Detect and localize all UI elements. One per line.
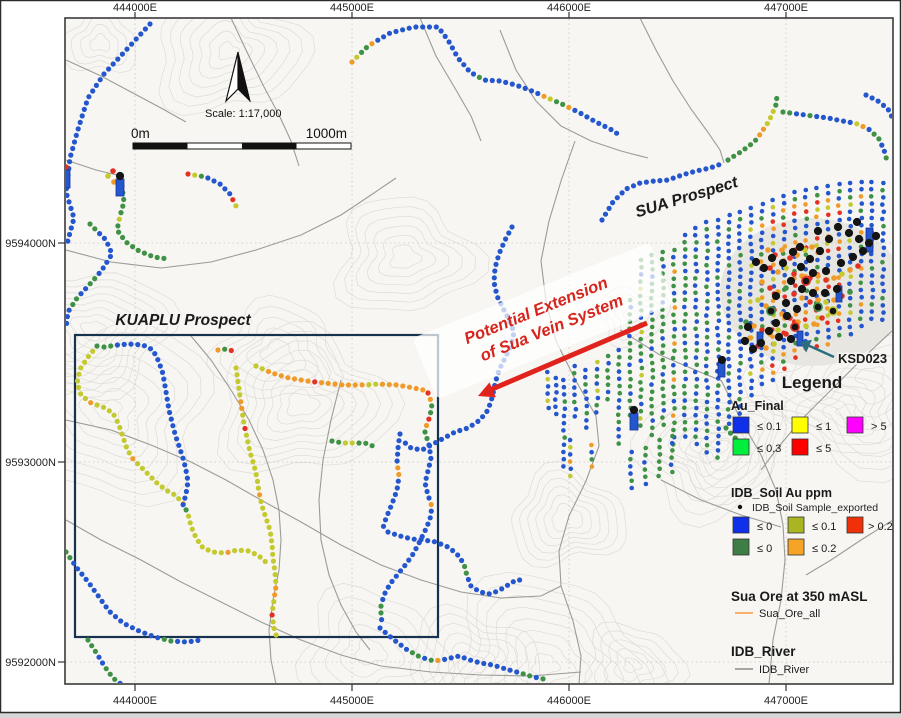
ksd023-label: KSD023 [838,351,887,366]
legend-title: Legend [782,373,842,392]
scale-seg-4 [297,143,352,149]
label-soil-gt02: > 0.2 [868,521,893,533]
scale-seg-1 [133,143,188,149]
swatch-soil-le0b [733,539,749,555]
map-figure-page: Potential Extension of Sua Vein System S… [0,0,901,718]
axis-bottom-447000e: 447000E [764,695,808,707]
scale-max-label: 1000m [306,126,347,141]
scale-seg-2 [188,143,243,149]
axis-top-446000e: 446000E [547,2,591,14]
axis-left-9594000n: 9594000N [5,238,56,250]
label-soil-le0b: ≤ 0 [757,543,772,555]
legend-river-title: IDB_River [731,644,796,659]
swatch-soil-le0a [733,517,749,533]
legend-au-final-title: Au_Final [731,399,784,413]
axis-bottom-445000e: 445000E [330,695,374,707]
swatch-soil-gt02 [847,517,863,533]
axis-top-447000e: 447000E [764,2,808,14]
label-au-le5: ≤ 5 [816,443,831,455]
axis-top-444000e: 444000E [113,2,157,14]
swatch-au-gt5 [847,417,863,433]
legend-soil-title: IDB_Soil Au ppm [731,486,832,500]
soil-sample-dot-icon [738,505,742,509]
swatch-soil-le02 [788,539,804,555]
label-au-le03: ≤ 0.3 [757,443,781,455]
label-au-le1: ≤ 1 [816,421,831,433]
swatch-soil-le01 [788,517,804,533]
label-soil-le01: ≤ 0.1 [812,521,836,533]
label-soil-le02: ≤ 0.2 [812,543,836,555]
kuaplu-prospect-label: KUAPLU Prospect [115,312,251,329]
swatch-au-le01 [733,417,749,433]
legend-river-item: IDB_River [759,664,809,676]
axis-left-9592000n: 9592000N [5,657,56,669]
swatch-au-le1 [792,417,808,433]
axis-bottom-444000e: 444000E [113,695,157,707]
swatch-au-le5 [792,439,808,455]
legend-sua-ore-title: Sua Ore at 350 mASL [731,589,868,604]
label-au-gt5: > 5 [871,421,887,433]
legend-sua-ore-item: Sua_Ore_all [759,608,820,620]
axis-left-9593000n: 9593000N [5,457,56,469]
scale-ratio-label: Scale: 1:17,000 [205,108,281,120]
legend-soil-sample-label: IDB_Soil Sample_exported [752,502,878,514]
label-au-le01: ≤ 0.1 [757,421,781,433]
exploration-map: Potential Extension of Sua Vein System S… [0,0,901,718]
axis-bottom-446000e: 446000E [547,695,591,707]
label-soil-le0a: ≤ 0 [757,521,772,533]
scale-zero-label: 0m [131,126,150,141]
axis-top-445000e: 445000E [330,2,374,14]
scale-seg-3 [242,143,297,149]
swatch-au-le03 [733,439,749,455]
